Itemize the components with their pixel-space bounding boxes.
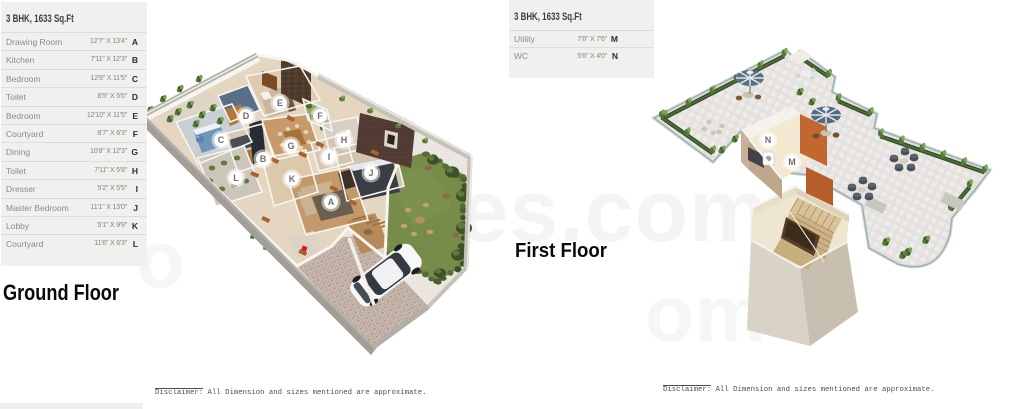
svg-text:B: B bbox=[260, 154, 267, 164]
svg-text:E: E bbox=[277, 98, 283, 108]
svg-text:D: D bbox=[243, 111, 250, 121]
svg-text:C: C bbox=[218, 135, 225, 145]
svg-text:I: I bbox=[328, 152, 331, 162]
svg-text:K: K bbox=[289, 174, 296, 184]
svg-text:H: H bbox=[341, 135, 348, 145]
svg-text:M: M bbox=[788, 157, 796, 167]
svg-text:F: F bbox=[317, 111, 323, 121]
svg-text:G: G bbox=[287, 141, 294, 151]
svg-text:A: A bbox=[328, 197, 335, 207]
svg-text:L: L bbox=[233, 173, 239, 183]
svg-text:N: N bbox=[765, 135, 772, 145]
svg-text:J: J bbox=[368, 168, 373, 178]
